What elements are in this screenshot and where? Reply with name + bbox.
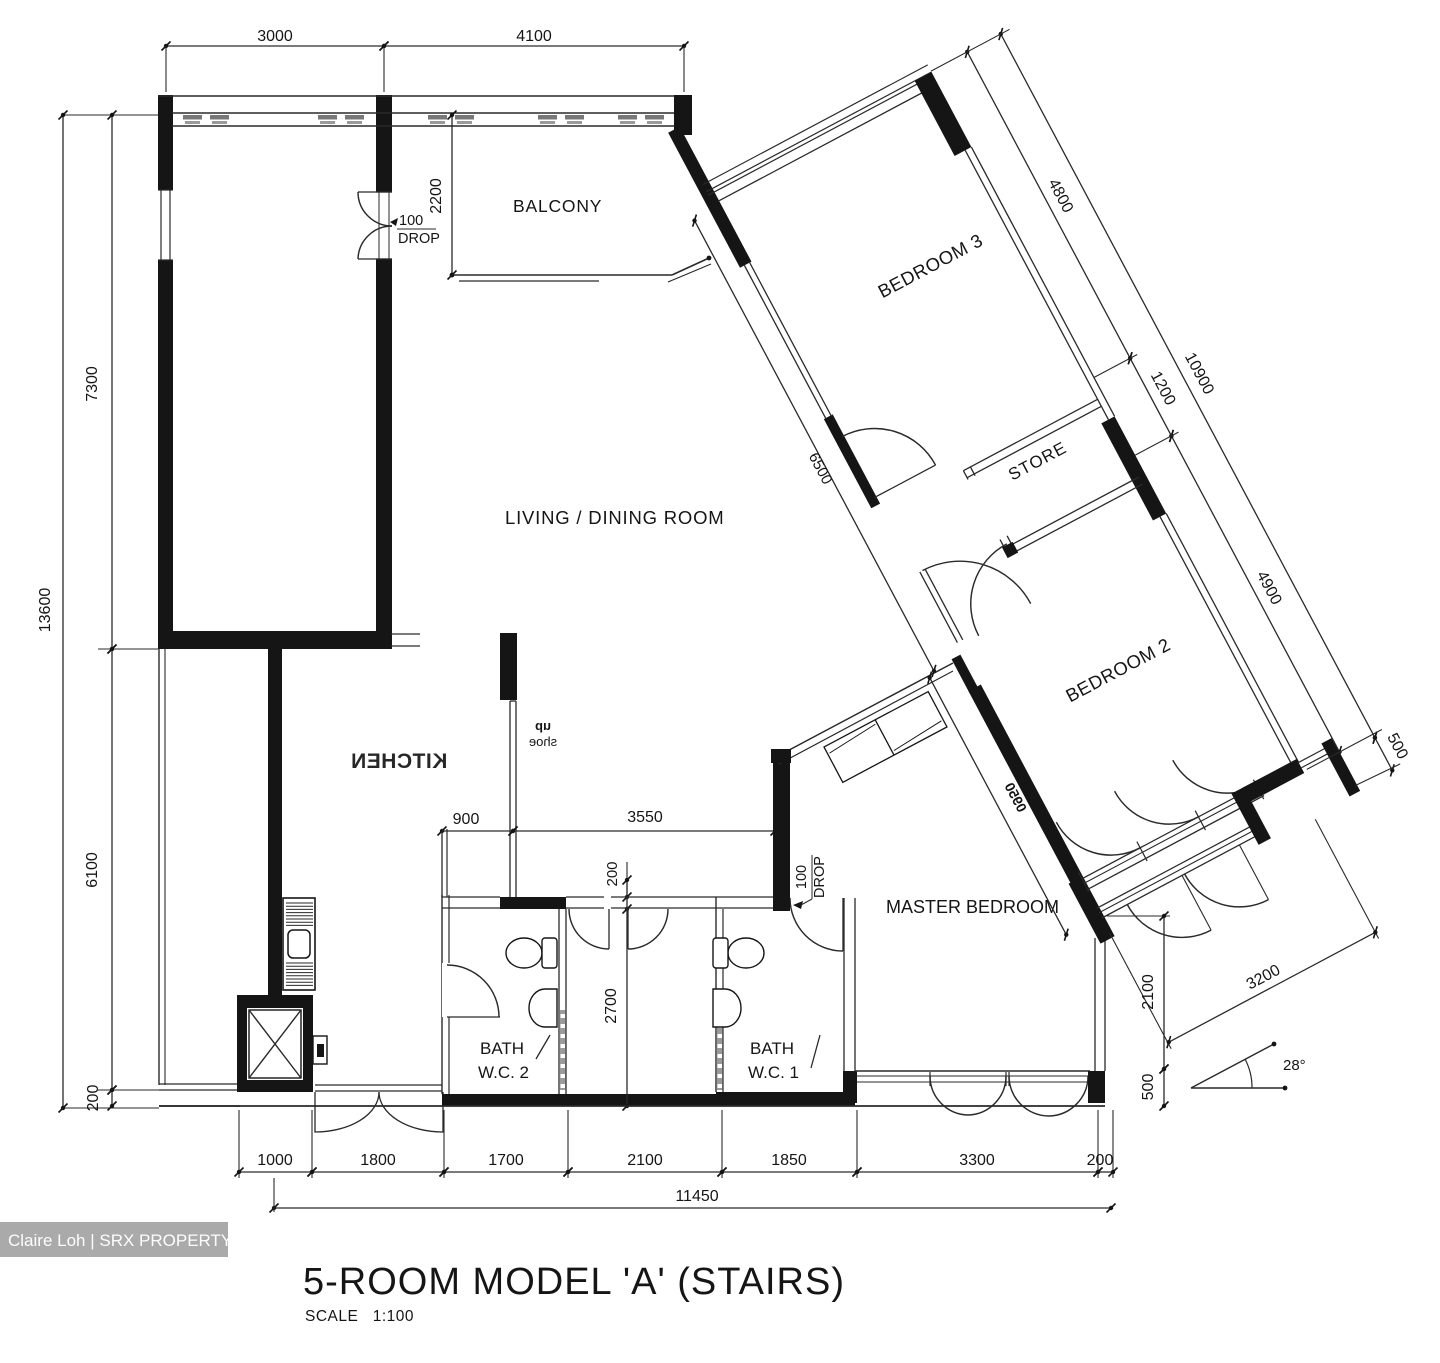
svg-text:100: 100 <box>794 865 810 889</box>
svg-text:200: 200 <box>1087 1152 1114 1169</box>
svg-text:SCALE 1:100: SCALE 1:100 <box>305 1308 414 1325</box>
svg-text:900: 900 <box>453 811 480 828</box>
svg-text:shoe: shoe <box>529 734 557 749</box>
svg-text:LIVING / DINING ROOM: LIVING / DINING ROOM <box>505 507 725 528</box>
svg-text:2700: 2700 <box>603 988 620 1024</box>
svg-text:BATH: BATH <box>750 1039 794 1058</box>
svg-text:DROP: DROP <box>398 231 440 247</box>
svg-text:3550: 3550 <box>627 809 663 826</box>
svg-text:Claire Loh | SRX PROPERTY: Claire Loh | SRX PROPERTY <box>8 1231 232 1250</box>
svg-text:W.C. 1: W.C. 1 <box>748 1063 799 1082</box>
svg-text:up: up <box>535 718 551 733</box>
svg-text:13600: 13600 <box>37 588 54 633</box>
svg-text:6100: 6100 <box>84 852 101 888</box>
svg-text:4100: 4100 <box>516 28 552 45</box>
svg-text:W.C. 2: W.C. 2 <box>478 1063 529 1082</box>
svg-text:28°: 28° <box>1283 1057 1306 1074</box>
svg-text:3300: 3300 <box>959 1152 995 1169</box>
svg-text:BATH: BATH <box>480 1039 524 1058</box>
svg-text:1800: 1800 <box>360 1152 396 1169</box>
svg-text:BALCONY: BALCONY <box>513 196 602 216</box>
svg-text:100: 100 <box>399 213 423 229</box>
svg-text:11450: 11450 <box>675 1188 718 1205</box>
svg-text:DROP: DROP <box>812 856 828 898</box>
svg-text:2200: 2200 <box>428 178 445 214</box>
svg-text:7300: 7300 <box>84 366 101 402</box>
svg-text:2100: 2100 <box>627 1152 663 1169</box>
svg-text:200: 200 <box>604 861 621 886</box>
svg-text:5-ROOM MODEL 'A' (STAIRS): 5-ROOM MODEL 'A' (STAIRS) <box>303 1261 845 1303</box>
svg-text:200: 200 <box>85 1085 102 1112</box>
svg-text:MASTER BEDROOM: MASTER BEDROOM <box>886 897 1059 917</box>
svg-text:500: 500 <box>1140 1074 1157 1101</box>
svg-text:KITCHEN: KITCHEN <box>351 750 448 773</box>
svg-text:1000: 1000 <box>257 1152 293 1169</box>
svg-text:1700: 1700 <box>488 1152 524 1169</box>
svg-text:3000: 3000 <box>257 28 293 45</box>
svg-text:2100: 2100 <box>1140 974 1157 1010</box>
svg-text:1850: 1850 <box>771 1152 807 1169</box>
